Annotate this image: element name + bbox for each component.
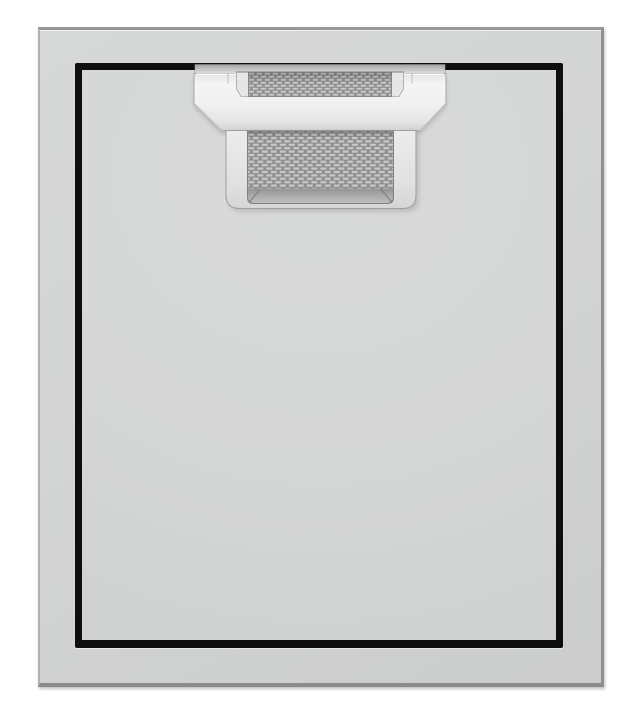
- handle-grip-inner-face: [248, 189, 393, 204]
- product-photo-stage: [0, 0, 633, 721]
- handle-grip-mesh-shade: [248, 132, 393, 146]
- handle-top-mesh-shade: [249, 72, 392, 97]
- door-handle: [185, 55, 455, 220]
